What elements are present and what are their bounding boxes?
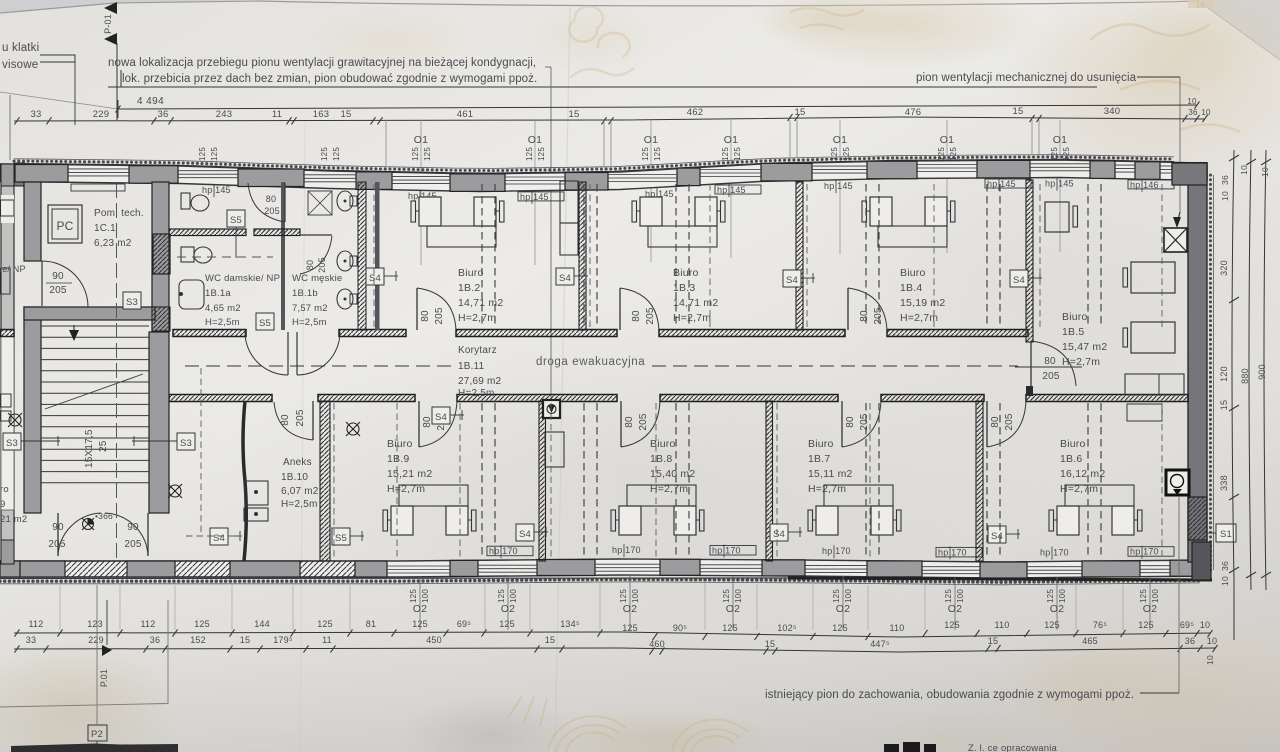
svg-text:Biuro: Biuro <box>673 267 699 279</box>
svg-text:125: 125 <box>412 619 428 629</box>
svg-text:S4: S4 <box>1013 275 1025 286</box>
svg-text:PC: PC <box>56 219 73 233</box>
svg-text:4,65 m2: 4,65 m2 <box>205 303 241 314</box>
svg-text:25: 25 <box>98 440 109 452</box>
svg-text:205: 205 <box>859 413 870 431</box>
svg-text:100: 100 <box>734 589 743 603</box>
svg-text:76⁵: 76⁵ <box>1093 620 1107 630</box>
svg-text:S5: S5 <box>335 533 347 544</box>
svg-text:36: 36 <box>158 109 169 120</box>
svg-text:15,11 m2: 15,11 m2 <box>808 468 853 480</box>
svg-text:125: 125 <box>733 147 742 161</box>
svg-text:O2: O2 <box>948 603 962 615</box>
svg-text:O1: O1 <box>724 134 738 146</box>
svg-text:125: 125 <box>721 147 730 161</box>
svg-text:10: 10 <box>1187 97 1197 106</box>
svg-text:476: 476 <box>905 107 921 118</box>
svg-text:H=2,7m: H=2,7m <box>1062 356 1100 368</box>
svg-text:36: 36 <box>1188 108 1198 117</box>
svg-text:O2: O2 <box>836 603 850 615</box>
svg-text:hp 145: hp 145 <box>202 185 231 195</box>
svg-text:125: 125 <box>411 147 420 161</box>
svg-text:205: 205 <box>49 285 67 296</box>
svg-text:6,23 m2: 6,23 m2 <box>94 238 132 249</box>
svg-text:10: 10 <box>1200 620 1210 630</box>
svg-text:hp 170: hp 170 <box>1130 547 1159 557</box>
svg-text:10: 10 <box>1207 636 1217 646</box>
svg-text:11: 11 <box>322 635 332 645</box>
svg-text:O2: O2 <box>501 603 515 615</box>
svg-text:nowa lokalizacja przebiegu pio: nowa lokalizacja przebiegu pionu wentyla… <box>108 57 536 69</box>
svg-text:320: 320 <box>1219 260 1229 276</box>
svg-text:lok. przebicia przez dach bez: lok. przebicia przez dach bez zmian, pio… <box>122 73 537 85</box>
svg-text:H=2,5m: H=2,5m <box>281 499 318 510</box>
svg-text:hp 145: hp 145 <box>1045 179 1074 189</box>
svg-text:H=2,7m: H=2,7m <box>673 312 711 324</box>
svg-text:81: 81 <box>366 619 376 629</box>
svg-text:33: 33 <box>26 635 36 645</box>
svg-text:1C.1: 1C.1 <box>94 223 116 234</box>
svg-text:Biuro: Biuro <box>387 438 413 450</box>
svg-text:125: 125 <box>1046 589 1055 603</box>
svg-text:hp 170: hp 170 <box>489 546 518 556</box>
svg-text:125: 125 <box>619 589 628 603</box>
svg-text:102⁵: 102⁵ <box>777 623 797 633</box>
svg-text:27,69 m2: 27,69 m2 <box>458 376 502 387</box>
svg-text:O2: O2 <box>726 603 740 615</box>
svg-text:205: 205 <box>124 539 142 550</box>
svg-text:hp 145: hp 145 <box>824 181 853 191</box>
svg-text:H=2,5m: H=2,5m <box>205 317 240 328</box>
svg-text:•366: •366 <box>95 511 113 521</box>
svg-text:hp 145: hp 145 <box>987 179 1016 189</box>
svg-text:125: 125 <box>653 147 662 161</box>
svg-text:O1: O1 <box>1053 134 1067 146</box>
svg-text:90: 90 <box>127 522 139 533</box>
svg-text:112: 112 <box>29 619 44 629</box>
svg-text:125: 125 <box>497 589 506 603</box>
svg-text:462: 462 <box>687 107 703 118</box>
svg-text:125: 125 <box>194 619 210 629</box>
svg-text:125: 125 <box>1139 589 1148 603</box>
svg-text:ie/ NP: ie/ NP <box>0 264 26 274</box>
svg-text:15: 15 <box>765 639 775 649</box>
svg-text:100: 100 <box>1151 589 1160 603</box>
svg-text:125: 125 <box>832 589 841 603</box>
svg-text:droga ewakuacyjna: droga ewakuacyjna <box>536 356 645 368</box>
svg-text:179⁵: 179⁵ <box>273 635 293 645</box>
svg-text:WC damskie/ NP: WC damskie/ NP <box>205 273 280 284</box>
svg-text:S5: S5 <box>230 215 242 226</box>
svg-text:O1: O1 <box>528 134 542 146</box>
svg-text:125: 125 <box>832 623 848 633</box>
svg-text:pion wentylacji mechanicznej d: pion wentylacji mechanicznej do usunięci… <box>916 72 1137 84</box>
svg-text:110: 110 <box>995 620 1010 630</box>
svg-text:80: 80 <box>266 194 276 204</box>
svg-text:S5: S5 <box>259 318 271 329</box>
svg-text:205: 205 <box>1042 371 1060 382</box>
svg-text:16,12 m2: 16,12 m2 <box>1060 468 1105 480</box>
svg-text:447⁵: 447⁵ <box>870 639 890 649</box>
svg-text:6,07 m2: 6,07 m2 <box>281 486 319 497</box>
svg-text:O1: O1 <box>833 134 847 146</box>
svg-text:15,19 m2: 15,19 m2 <box>900 297 945 309</box>
svg-text:15: 15 <box>545 635 555 645</box>
svg-text:O2: O2 <box>1143 603 1157 615</box>
svg-text:243: 243 <box>216 109 232 120</box>
svg-text:120: 120 <box>1219 366 1229 382</box>
svg-text:S3: S3 <box>6 438 18 449</box>
svg-text:u klatki: u klatki <box>2 42 39 54</box>
svg-text:Pom. tech.: Pom. tech. <box>94 208 144 219</box>
svg-text:21 m2: 21 m2 <box>0 514 27 525</box>
svg-text:125: 125 <box>210 147 219 161</box>
svg-text:14,71 m2: 14,71 m2 <box>673 297 718 309</box>
svg-text:450: 450 <box>426 635 442 645</box>
svg-text:15: 15 <box>240 635 250 645</box>
svg-text:10: 10 <box>1260 167 1270 177</box>
svg-text:80: 80 <box>859 310 870 322</box>
svg-text:125: 125 <box>944 589 953 603</box>
svg-text:125: 125 <box>409 589 418 603</box>
svg-text:125: 125 <box>1044 620 1060 630</box>
svg-text:338: 338 <box>1219 475 1229 491</box>
svg-text:hp 170: hp 170 <box>822 546 851 556</box>
svg-text:Biuro: Biuro <box>1062 311 1088 323</box>
svg-text:33: 33 <box>31 109 42 120</box>
svg-text:125: 125 <box>317 619 333 629</box>
svg-text:123: 123 <box>87 619 103 629</box>
svg-text:15: 15 <box>341 109 352 120</box>
svg-text:1B.6: 1B.6 <box>1060 453 1082 465</box>
svg-text:Z. l. ce opracowania: Z. l. ce opracowania <box>968 743 1058 752</box>
svg-text:125: 125 <box>525 147 534 161</box>
svg-text:1B.11: 1B.11 <box>458 361 485 372</box>
svg-text:1B.7: 1B.7 <box>808 453 830 465</box>
svg-text:4 494: 4 494 <box>137 96 164 107</box>
svg-text:visowe: visowe <box>2 59 38 71</box>
svg-text:110: 110 <box>890 623 905 633</box>
svg-text:125: 125 <box>1062 147 1071 161</box>
svg-text:36: 36 <box>1185 636 1195 646</box>
svg-text:80: 80 <box>845 416 856 428</box>
svg-text:80: 80 <box>422 416 433 428</box>
svg-text:H=2,7m: H=2,7m <box>458 312 496 324</box>
svg-text:100: 100 <box>844 589 853 603</box>
svg-text:125: 125 <box>641 147 650 161</box>
svg-text:80: 80 <box>624 416 635 428</box>
svg-text:15,47 m2: 15,47 m2 <box>1062 341 1107 353</box>
svg-text:WC męskie: WC męskie <box>292 273 342 284</box>
svg-text:S3: S3 <box>180 438 192 449</box>
svg-text:36: 36 <box>1220 561 1230 571</box>
svg-text:80: 80 <box>1044 356 1056 367</box>
svg-text:229: 229 <box>88 635 104 645</box>
svg-text:S1: S1 <box>1220 529 1232 540</box>
svg-text:hp 170: hp 170 <box>938 547 967 557</box>
svg-text:112: 112 <box>141 619 156 629</box>
svg-text:Biuro: Biuro <box>1060 438 1086 450</box>
svg-text:90⁵: 90⁵ <box>673 623 687 633</box>
svg-text:hp 145: hp 145 <box>717 185 746 195</box>
svg-text:90: 90 <box>52 271 64 282</box>
svg-text:15: 15 <box>988 636 998 646</box>
svg-text:125: 125 <box>320 147 329 161</box>
svg-text:900: 900 <box>1257 364 1267 380</box>
svg-text:hp 146: hp 146 <box>1130 180 1159 190</box>
svg-text:O1: O1 <box>644 134 658 146</box>
svg-text:125: 125 <box>722 623 738 633</box>
svg-text:istniejący pion do zachowania,: istniejący pion do zachowania, obudowani… <box>765 689 1134 701</box>
svg-text:229: 229 <box>93 109 109 120</box>
svg-text:205: 205 <box>1004 413 1015 431</box>
svg-text:S4: S4 <box>991 531 1003 542</box>
svg-text:1B.2: 1B.2 <box>458 282 480 294</box>
svg-text:205: 205 <box>638 413 649 431</box>
svg-text:152: 152 <box>190 635 206 645</box>
svg-text:163: 163 <box>313 109 329 120</box>
svg-text:36: 36 <box>1220 175 1230 185</box>
svg-text:125: 125 <box>1138 620 1154 630</box>
svg-text:205: 205 <box>317 257 327 273</box>
svg-text:7,57 m2: 7,57 m2 <box>292 303 328 314</box>
svg-text:80: 80 <box>280 414 291 426</box>
svg-text:125: 125 <box>622 623 638 633</box>
svg-text:15: 15 <box>1219 400 1229 410</box>
svg-text:hp 170: hp 170 <box>1040 548 1069 558</box>
svg-text:ro: ro <box>0 484 9 495</box>
svg-text:80: 80 <box>305 260 315 270</box>
svg-text:460: 460 <box>649 639 665 649</box>
svg-text:100: 100 <box>631 589 640 603</box>
svg-text:125: 125 <box>423 147 432 161</box>
svg-text:15,21 m2: 15,21 m2 <box>387 468 432 480</box>
svg-text:P.01: P.01 <box>99 669 109 687</box>
svg-text:80: 80 <box>631 310 642 322</box>
svg-text:15X17,5: 15X17,5 <box>84 429 95 468</box>
svg-text:10: 10 <box>1239 165 1249 175</box>
svg-text:11: 11 <box>272 109 282 120</box>
svg-text:S4: S4 <box>435 412 447 423</box>
svg-text:80: 80 <box>990 416 1001 428</box>
svg-text:1B.5: 1B.5 <box>1062 326 1084 338</box>
svg-text:Biuro: Biuro <box>650 438 676 450</box>
svg-text:880: 880 <box>1240 368 1250 384</box>
svg-text:10: 10 <box>1220 191 1230 201</box>
svg-text:134⁵: 134⁵ <box>560 619 580 629</box>
svg-text:H=2,5m: H=2,5m <box>292 317 327 328</box>
svg-text:80: 80 <box>420 310 431 322</box>
svg-text:S3: S3 <box>126 297 138 308</box>
svg-text:S4: S4 <box>559 273 571 284</box>
svg-text:144: 144 <box>254 619 270 629</box>
svg-text:465: 465 <box>1082 636 1098 646</box>
svg-text:461: 461 <box>457 109 473 120</box>
svg-text:Biuro: Biuro <box>458 267 484 279</box>
svg-text:10: 10 <box>1220 576 1230 586</box>
svg-text:15: 15 <box>569 109 580 120</box>
svg-text:Korytarz: Korytarz <box>458 345 497 356</box>
svg-text:hp 145: hp 145 <box>520 192 549 202</box>
svg-text:hp 170: hp 170 <box>712 546 741 556</box>
svg-text:P-01: P-01 <box>103 14 113 34</box>
svg-text:P2: P2 <box>91 729 103 740</box>
svg-text:125: 125 <box>198 147 207 161</box>
svg-text:205: 205 <box>264 206 280 216</box>
svg-text:125: 125 <box>944 620 960 630</box>
svg-text:100: 100 <box>509 589 518 603</box>
svg-text:1B.8: 1B.8 <box>650 453 672 465</box>
svg-text:125: 125 <box>537 147 546 161</box>
svg-text:S4: S4 <box>786 275 798 286</box>
svg-text:205: 205 <box>48 539 66 550</box>
svg-text:1B.1b: 1B.1b <box>292 288 318 299</box>
svg-text:205: 205 <box>295 409 306 427</box>
svg-text:1B.9: 1B.9 <box>387 453 409 465</box>
svg-text:Aneks: Aneks <box>283 457 312 468</box>
svg-text:100: 100 <box>956 589 965 603</box>
svg-text:100: 100 <box>1058 589 1067 603</box>
svg-text:10: 10 <box>1201 108 1211 117</box>
svg-text:69⁵: 69⁵ <box>1180 620 1194 630</box>
svg-text:205: 205 <box>645 307 656 325</box>
svg-text:S4: S4 <box>773 529 785 540</box>
svg-text:205: 205 <box>434 307 445 325</box>
svg-text:69⁵: 69⁵ <box>457 619 471 629</box>
svg-text:15: 15 <box>1013 106 1024 117</box>
svg-text:1B.4: 1B.4 <box>900 282 922 294</box>
svg-text:S4: S4 <box>213 533 225 544</box>
svg-text:100: 100 <box>421 589 430 603</box>
svg-text:90: 90 <box>52 522 64 533</box>
svg-text:1B.10: 1B.10 <box>281 472 308 483</box>
svg-text:1B.1a: 1B.1a <box>205 288 231 299</box>
svg-text:14,71 m2: 14,71 m2 <box>458 297 503 309</box>
svg-text:H=2,7m: H=2,7m <box>900 312 938 324</box>
svg-text:10: 10 <box>1205 655 1215 665</box>
svg-text:O1: O1 <box>414 134 428 146</box>
svg-text:hp 170: hp 170 <box>612 545 641 555</box>
svg-text:Biuro: Biuro <box>900 267 926 279</box>
svg-text:S4: S4 <box>519 529 531 540</box>
svg-text:125: 125 <box>332 147 341 161</box>
svg-text:H=2,5m: H=2,5m <box>458 388 495 399</box>
svg-text:O2: O2 <box>623 603 637 615</box>
svg-text:125: 125 <box>499 619 515 629</box>
svg-text:O2: O2 <box>1050 603 1064 615</box>
svg-text:Biuro: Biuro <box>808 438 834 450</box>
svg-text:340: 340 <box>1104 106 1120 117</box>
svg-text:15: 15 <box>795 107 806 118</box>
svg-text:S4: S4 <box>369 273 381 284</box>
svg-text:125: 125 <box>722 589 731 603</box>
svg-text:O1: O1 <box>940 134 954 146</box>
svg-text:36: 36 <box>150 635 160 645</box>
svg-text:O2: O2 <box>413 603 427 615</box>
svg-text:9: 9 <box>0 499 5 510</box>
